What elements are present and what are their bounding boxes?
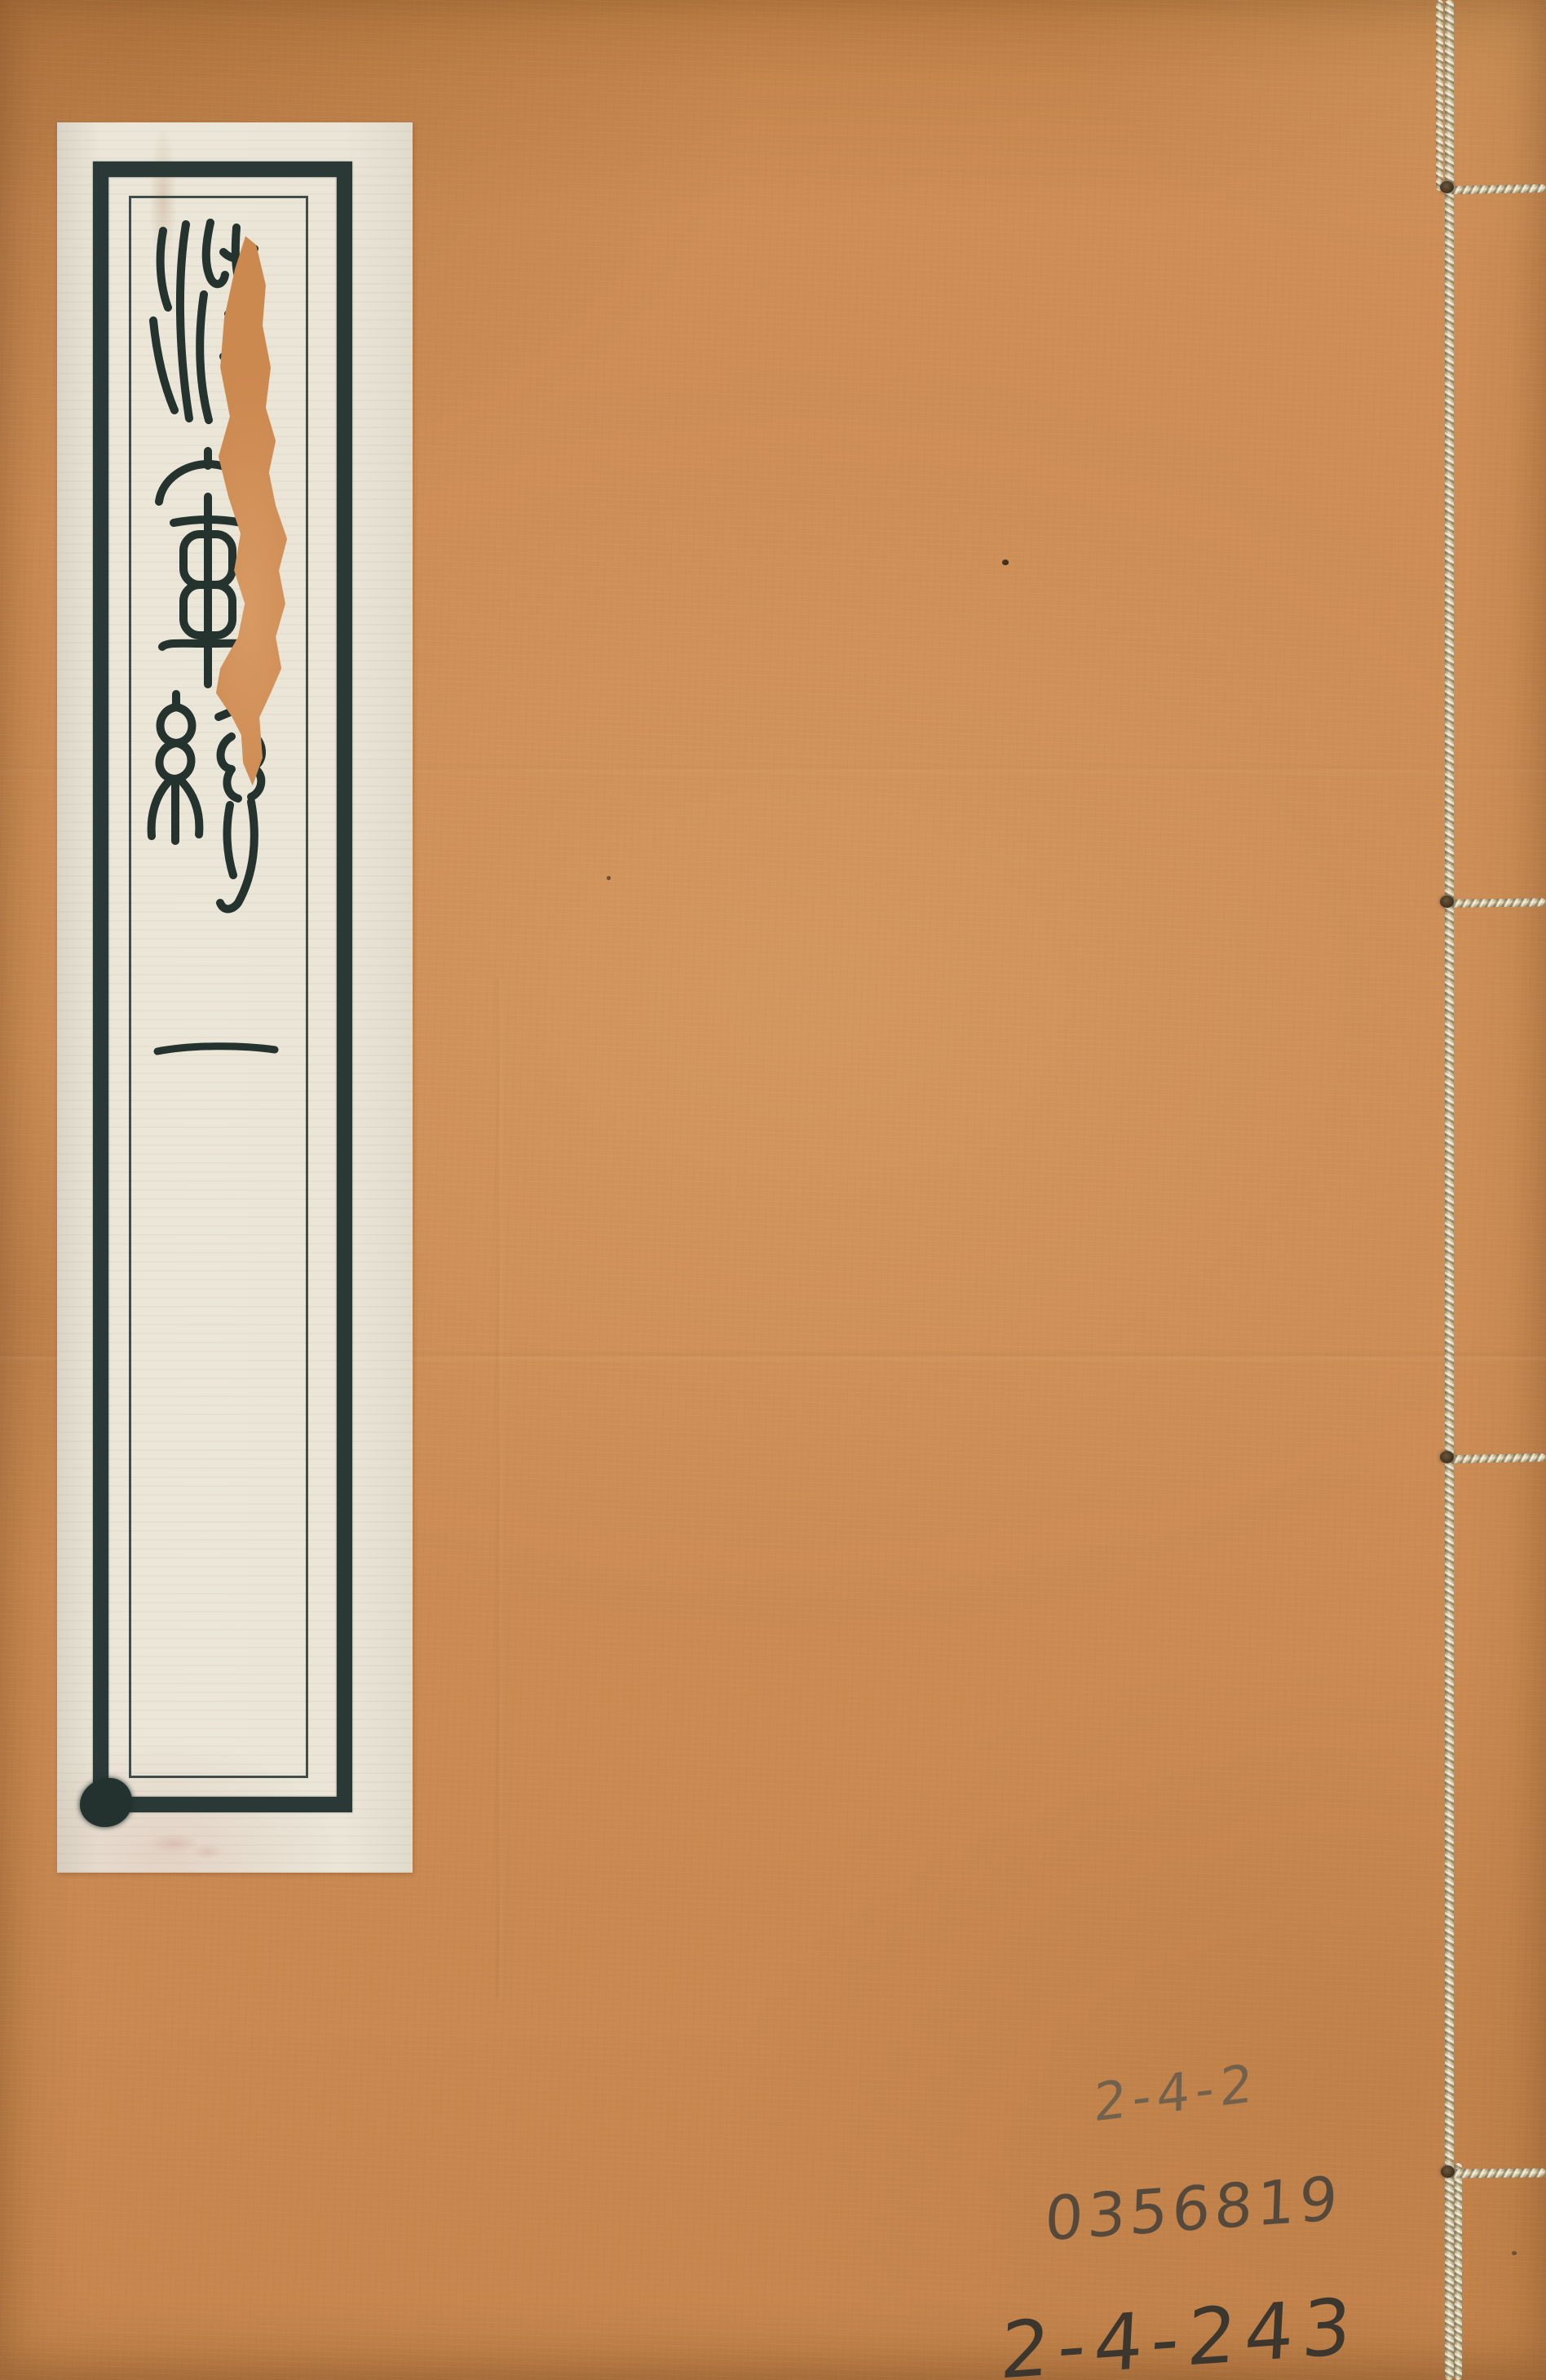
handwritten-shelfmark-line1: 2-4-2	[1093, 2053, 1259, 2134]
book-cover-scan: 海 軍	[0, 0, 1546, 2380]
paper-speck	[1512, 2251, 1517, 2255]
stitch-knot-4	[1441, 2165, 1455, 2178]
ink-blot	[80, 1778, 132, 1827]
binding-thread-vertical	[1445, 0, 1454, 2380]
binding-thread-vertical-double-top	[1436, 0, 1443, 191]
stitch-knot-3	[1440, 1451, 1454, 1463]
handwritten-shelfmark-line3: 2-4-243	[998, 2281, 1362, 2380]
title-character-jun: 軍	[143, 445, 273, 689]
seal-glyph-drawing	[139, 689, 285, 918]
binding-thread-horizontal-4	[1450, 2168, 1546, 2178]
title-label: 海 軍	[57, 122, 413, 1873]
paper-speck	[607, 876, 611, 880]
binding-thread-horizontal-2	[1450, 898, 1546, 908]
seal-glyph-drawing	[151, 1024, 281, 1073]
binding-thread-vertical-double-bottom	[1455, 2163, 1462, 2380]
handwritten-accession-number: 0356819	[1044, 2164, 1343, 2255]
seal-glyph-drawing	[143, 445, 273, 689]
stitch-knot-2	[1440, 896, 1454, 908]
cover-crease	[493, 979, 505, 1998]
stitch-knot-1	[1440, 181, 1454, 193]
title-character-hai: 海	[139, 216, 277, 453]
binding-thread-horizontal-1	[1450, 184, 1546, 194]
title-character-tong: 統	[139, 689, 285, 918]
paper-speck	[1002, 560, 1009, 565]
seal-glyph-drawing	[139, 216, 277, 453]
label-stain	[135, 1823, 232, 1864]
binding-thread-horizontal-3	[1450, 1453, 1546, 1463]
volume-marker-one: 一	[151, 1024, 281, 1073]
